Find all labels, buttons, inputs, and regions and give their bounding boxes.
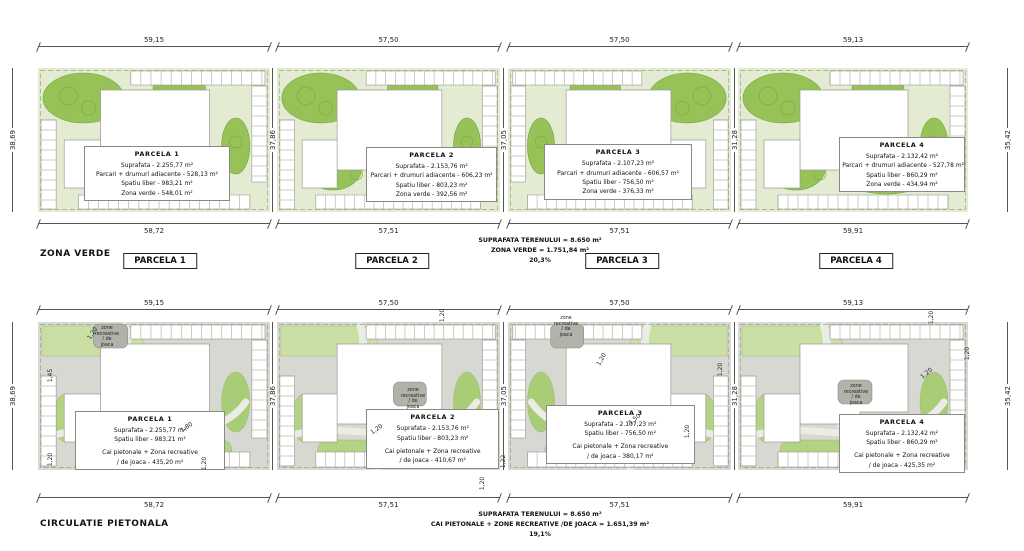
parcel-title: PARCELA 4 [842,141,962,149]
parcel-info-line: Spatiu liber - 803,23 m² [369,181,494,190]
small-dimension-label: 1,20 [684,425,691,438]
dimension-line: 38,69 [12,68,13,212]
parcel-title: PARCELA 4 [842,418,962,426]
dimension-label: 57,51 [378,501,398,509]
dimension-line: 57,50 [277,309,500,310]
parcel-info-line: Parcari + drumuri adiacente - 527,78 m² [842,161,962,170]
parcel-info-line: / de joaca - 410,67 m² [369,456,496,465]
site-plan-zv-parcela-1: PARCELA 1 Suprafata - 2.255,77 m² Parcar… [38,68,270,212]
site-plan-zv-parcela-2: PARCELA 2 Suprafata - 2.153,76 m² Parcar… [277,68,500,212]
site-plan-cp-parcela-3: PARCELA 3 Suprafata - 2.107,23 m² Spatiu… [508,322,731,470]
dimension-label: 59,91 [843,501,863,509]
section-title-zona-verde: ZONA VERDE [40,249,110,259]
dimension-label: 59,15 [144,36,164,44]
dimension-label: 58,72 [144,501,164,509]
dimension-label: 57,50 [378,299,398,307]
parcel-info-line: Spatiu liber - 756,50 m² [549,429,692,438]
parcel-info-line: Zona verde - 392,56 m² [369,190,494,199]
dimension-line: 57,51 [277,223,500,224]
summary-line: CAI PIETONALE + ZONE RECREATIVE /DE JOAC… [431,520,649,530]
dimension-line: 59,91 [738,497,968,498]
dimension-label: 37,05 [500,384,508,408]
parcel-info-box: PARCELA 3 Suprafata - 2.107,23 m² Parcar… [544,144,693,199]
parcel-info-line: Spatiu liber - 860,29 m² [842,171,962,180]
parcel-tag-1: PARCELA 1 [123,253,197,269]
dimension-line: 37,86 [272,322,273,470]
summary-circulatie-pietonala: SUPRAFATA TERENULUI = 8.650 m² CAI PIETO… [431,510,649,539]
parcel-info-line: Suprafata - 2.132,42 m² [842,429,962,438]
small-dimension-label: 1,22 [500,455,507,468]
dimension-line: 38,69 [12,322,13,470]
dimension-label: 59,15 [144,299,164,307]
parcel-title: PARCELA 3 [549,409,692,417]
dimension-line: 58,72 [38,223,270,224]
dimension-line: 31,28 [734,322,735,470]
dimension-label: 38,69 [9,128,17,152]
parcel-info-line: / de joaca - 425,35 m² [842,461,962,470]
parcel-info-line: Parcari + drumuri adiacente - 606,23 m² [369,171,494,180]
parcel-info-line: Suprafata - 2.255,77 m² [87,161,226,170]
parcel-title: PARCELA 2 [369,151,494,159]
dimension-line: 31,28 [734,68,735,212]
parcel-info-line: Parcari + drumuri adiacente - 606,57 m² [547,169,690,178]
parcel-info-box: PARCELA 1 Suprafata - 2.255,77 m² Parcar… [84,146,229,201]
dimension-line: 37,05 [503,322,504,470]
summary-zona-verde: SUPRAFATA TERENULUI = 8.650 m² ZONA VERD… [478,236,601,265]
dimension-label: 37,05 [500,128,508,152]
parcel-info-box: PARCELA 3 Suprafata - 2.107,23 m² Spatiu… [546,405,695,464]
dimension-line: 35,42 [1007,68,1008,212]
site-plan-zv-parcela-3: PARCELA 3 Suprafata - 2.107,23 m² Parcar… [508,68,731,212]
dimension-line: 58,72 [38,497,270,498]
dimension-label: 57,51 [378,227,398,235]
dimension-label: 57,50 [609,36,629,44]
dimension-label: 57,51 [609,501,629,509]
parcel-info-line: Suprafata - 2.153,76 m² [369,162,494,171]
small-dimension-label: 1,20 [439,309,446,322]
summary-line: SUPRAFATA TERENULUI = 8.650 m² [478,236,601,246]
parcel-tag-3: PARCELA 3 [585,253,659,269]
dimension-label: 35,42 [1004,384,1012,408]
parcel-info-line: Suprafata - 2.153,76 m² [369,424,496,433]
dimension-label: 37,86 [269,384,277,408]
parcel-info-box: PARCELA 2 Suprafata - 2.153,76 m² Parcar… [366,147,497,202]
parcel-info-line: Spatiu liber - 756,50 m² [547,178,690,187]
small-dimension-label: 1,20 [964,347,971,360]
dimension-label: 57,51 [609,227,629,235]
dimension-line: 59,91 [738,223,968,224]
parcel-info-box: PARCELA 4 Suprafata - 2.132,42 m² Spatiu… [839,414,965,473]
parcel-info-line: Suprafata - 2.107,23 m² [547,159,690,168]
dimension-line: 57,51 [508,497,731,498]
parcel-title: PARCELA 1 [78,415,222,423]
dimension-label: 35,42 [1004,128,1012,152]
zone-recreative-label: zone recreative / de joaca [554,316,578,338]
parcel-info-line: Suprafata - 2.107,23 m² [549,420,692,429]
small-dimension-label: 1,20 [928,311,935,324]
summary-line: SUPRAFATA TERENULUI = 8.650 m² [431,510,649,520]
dimension-line: 37,05 [503,68,504,212]
site-plan-cp-parcela-1: PARCELA 1 Suprafata - 2.255,77 m² Spatiu… [38,322,270,470]
parcel-info-line: Parcari + drumuri adiacente - 528,13 m² [87,170,226,179]
dimension-line: 57,50 [277,46,500,47]
zone-recreative-label: zone recreative / de joaca [401,388,425,410]
parcel-info-line: Spatiu liber - 983,21 m² [78,435,222,444]
drawing-canvas: 59,15 57,50 57,50 59,13 38,69 37,86 37,0… [0,0,1024,551]
dimension-label: 57,50 [609,299,629,307]
parcel-info-line: / de joaca - 380,17 m² [549,452,692,461]
dimension-label: 59,13 [843,36,863,44]
dimension-label: 59,13 [843,299,863,307]
parcel-info-line: Cai pietonale + Zona recreative [369,447,496,456]
small-dimension-label: 1,20 [47,453,54,466]
parcel-info-line: Zona verde - 376,33 m² [547,187,690,196]
parcel-info-line: Suprafata - 2.132,42 m² [842,152,962,161]
parcel-title: PARCELA 2 [369,413,496,421]
parcel-info-line: Spatiu liber - 803,23 m² [369,434,496,443]
parcel-title: PARCELA 3 [547,148,690,156]
summary-line: ZONA VERDE = 1.751,84 m² [478,246,601,256]
parcel-info-box: PARCELA 2 Suprafata - 2.153,76 m² Spatiu… [366,409,499,468]
dimension-line: 57,51 [277,497,500,498]
parcel-info-line: Suprafata - 2.255,77 m² [78,426,222,435]
summary-line: 19,1% [431,530,649,540]
dimension-line: 59,15 [38,46,270,47]
parcel-tag-2: PARCELA 2 [355,253,429,269]
parcel-info-line: Zona verde - 548,01 m² [87,189,226,198]
parcel-info-box: PARCELA 4 Suprafata - 2.132,42 m² Parcar… [839,137,965,192]
dimension-line: 57,50 [508,309,731,310]
parcel-info-line: Spatiu liber - 983,21 m² [87,179,226,188]
section-title-circulatie-pietonala: CIRCULATIE PIETONALA [40,519,169,529]
dimension-line: 57,51 [508,223,731,224]
small-dimension-label: 1,45 [47,369,54,382]
dimension-label: 59,91 [843,227,863,235]
small-dimension-label: 1,20 [201,457,208,470]
dimension-line: 37,86 [272,68,273,212]
parcel-tag-4: PARCELA 4 [819,253,893,269]
parcel-title: PARCELA 1 [87,150,226,158]
small-dimension-label: 1,20 [717,363,724,376]
zone-recreative-label: zone recreative / de joaca [844,384,868,406]
dimension-line: 57,50 [508,46,731,47]
parcel-info-line: Cai pietonale + Zona recreative [549,442,692,451]
dimension-label: 57,50 [378,36,398,44]
dimension-line: 35,42 [1007,322,1008,470]
dimension-label: 37,86 [269,128,277,152]
parcel-info-line: Cai pietonale + Zona recreative [842,451,962,460]
site-plan-zv-parcela-4: PARCELA 4 Suprafata - 2.132,42 m² Parcar… [738,68,968,212]
dimension-line: 59,15 [38,309,270,310]
dimension-line: 59,13 [738,46,968,47]
dimension-label: 38,69 [9,384,17,408]
parcel-info-line: Zona verde - 434,94 m² [842,180,962,189]
parcel-info-line: Spatiu liber - 860,29 m² [842,438,962,447]
site-plan-cp-parcela-2: PARCELA 2 Suprafata - 2.153,76 m² Spatiu… [277,322,500,470]
dimension-label: 58,72 [144,227,164,235]
summary-line: 20,3% [478,256,601,266]
small-dimension-label: 1,20 [479,477,486,490]
